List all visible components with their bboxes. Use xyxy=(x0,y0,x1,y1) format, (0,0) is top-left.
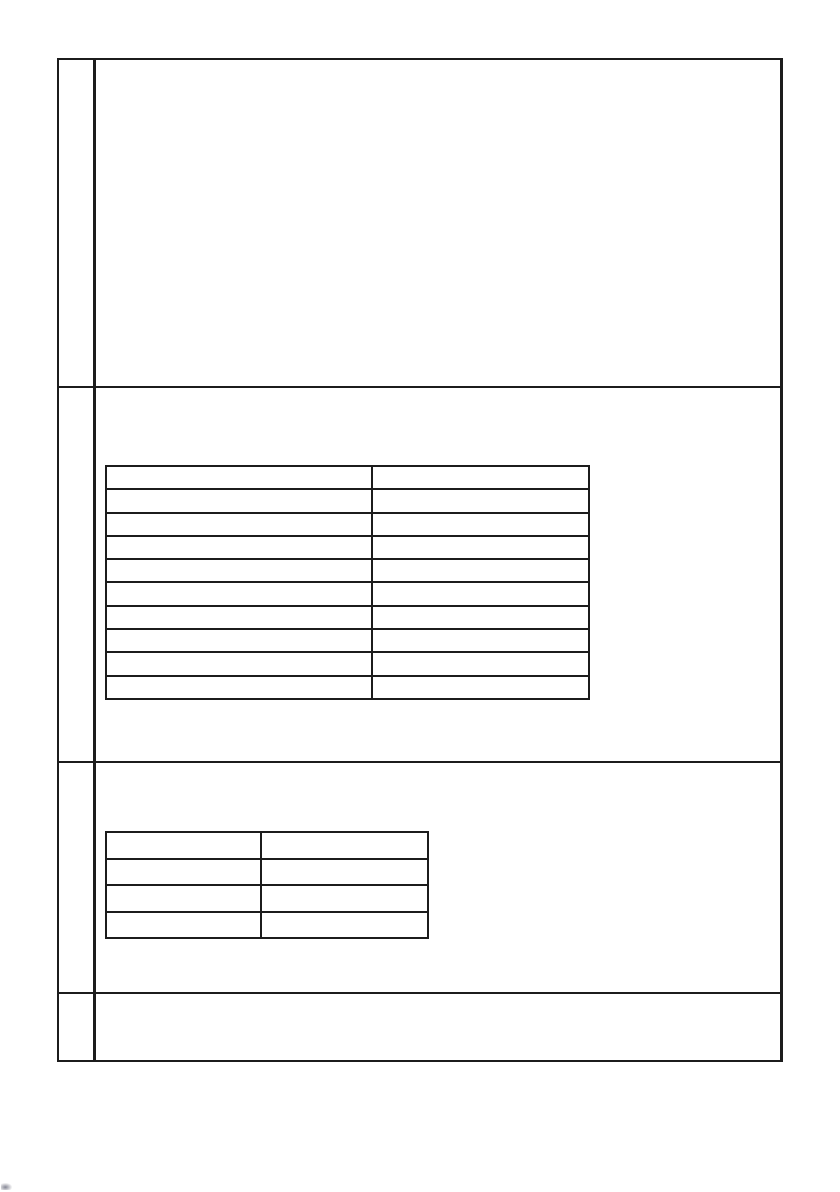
table-cell xyxy=(262,860,427,885)
table-row xyxy=(107,467,588,490)
table-cell xyxy=(107,653,373,674)
table-cell xyxy=(373,514,588,535)
table-cell xyxy=(373,467,588,488)
table-cell xyxy=(107,607,373,628)
outer-row-4-number-cell xyxy=(59,994,96,1060)
scan-artifact xyxy=(1,1183,12,1190)
table-cell xyxy=(107,467,373,488)
table-row xyxy=(107,653,588,676)
table-cell xyxy=(373,537,588,558)
table-cell xyxy=(262,833,427,858)
table-row xyxy=(107,490,588,513)
table-cell xyxy=(107,630,373,651)
table-cell xyxy=(107,833,262,858)
table-row xyxy=(107,677,588,698)
table-cell xyxy=(107,560,373,581)
table-row xyxy=(107,833,427,860)
table-cell xyxy=(107,913,262,938)
table-row xyxy=(107,886,427,913)
outer-row-1-number-cell xyxy=(59,60,96,388)
table-cell xyxy=(373,630,588,651)
table-cell xyxy=(262,913,427,938)
table-row xyxy=(107,560,588,583)
table-cell xyxy=(373,607,588,628)
table-cell xyxy=(107,514,373,535)
outer-row-2-number-cell xyxy=(59,388,96,763)
blank-table-small xyxy=(105,831,429,939)
table-cell xyxy=(373,490,588,511)
outer-row-3-number-cell xyxy=(59,763,96,994)
table-cell xyxy=(107,583,373,604)
table-row xyxy=(107,514,588,537)
table-cell xyxy=(373,653,588,674)
table-row xyxy=(107,607,588,630)
scanned-document-page xyxy=(0,0,840,1192)
table-row xyxy=(107,630,588,653)
table-cell xyxy=(373,560,588,581)
table-cell xyxy=(373,583,588,604)
table-cell xyxy=(107,677,373,698)
table-cell xyxy=(107,537,373,558)
outer-row-4-content-cell xyxy=(96,994,780,1060)
blank-table-large xyxy=(105,465,590,700)
table-cell xyxy=(107,860,262,885)
table-row xyxy=(107,583,588,606)
table-cell xyxy=(373,677,588,698)
table-cell xyxy=(107,490,373,511)
table-row xyxy=(107,913,427,938)
outer-row-1-content-cell xyxy=(96,60,780,388)
table-cell xyxy=(107,886,262,911)
table-cell xyxy=(262,886,427,911)
table-row xyxy=(107,537,588,560)
table-row xyxy=(107,860,427,887)
